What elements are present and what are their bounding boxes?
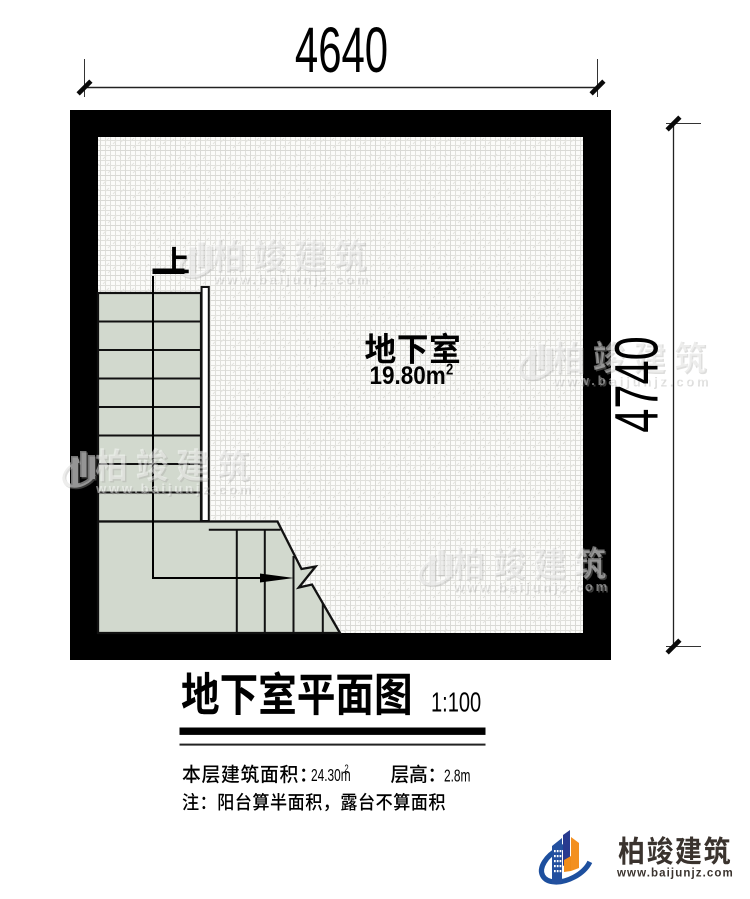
- svg-text:4640: 4640: [295, 15, 388, 86]
- svg-text:www.baijunjz.com: www.baijunjz.com: [616, 868, 734, 880]
- svg-text:1:100: 1:100: [431, 688, 481, 719]
- svg-text:2: 2: [446, 361, 453, 378]
- svg-text:2.8m: 2.8m: [444, 766, 470, 786]
- svg-text:www.baijunjz.com: www.baijunjz.com: [212, 271, 370, 286]
- svg-text:www.baijunjz.com: www.baijunjz.com: [95, 481, 253, 496]
- svg-text:www.baijunjz.com: www.baijunjz.com: [452, 579, 610, 594]
- svg-text:4740: 4740: [603, 336, 671, 432]
- svg-text:19.80m: 19.80m: [370, 362, 446, 390]
- svg-text:2: 2: [345, 761, 349, 774]
